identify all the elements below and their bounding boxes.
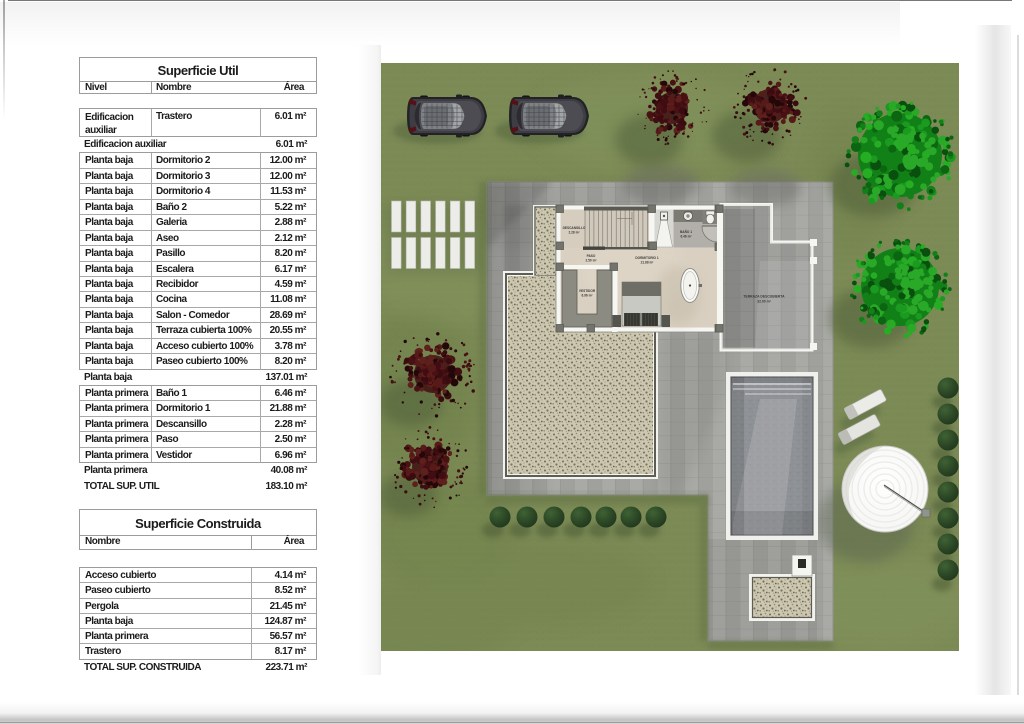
svg-text:6.46 m²: 6.46 m²	[681, 235, 692, 239]
svg-text:DORMITORIO 1: DORMITORIO 1	[635, 256, 659, 260]
svg-text:TERRAZA DESCUBIERTA: TERRAZA DESCUBIERTA	[743, 295, 785, 299]
svg-text:32.00 m²: 32.00 m²	[757, 300, 771, 304]
svg-text:2.28 m²: 2.28 m²	[569, 231, 580, 235]
svg-text:PASO: PASO	[587, 254, 596, 258]
svg-text:21.88 m²: 21.88 m²	[641, 261, 654, 265]
svg-text:VESTIDOR: VESTIDOR	[579, 289, 596, 293]
svg-text:BAÑO 1: BAÑO 1	[680, 229, 692, 234]
svg-text:2.50 m²: 2.50 m²	[586, 259, 597, 263]
svg-text:6.96 m²: 6.96 m²	[582, 294, 593, 298]
svg-text:DESCANSILLO: DESCANSILLO	[563, 226, 586, 230]
